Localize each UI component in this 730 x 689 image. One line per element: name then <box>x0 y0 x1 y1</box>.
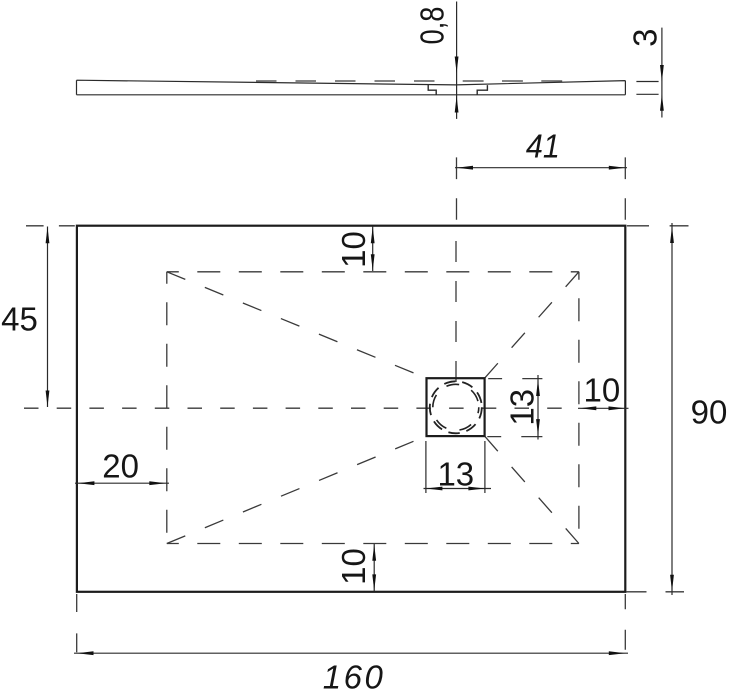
svg-text:13: 13 <box>504 389 541 426</box>
svg-text:10: 10 <box>335 231 372 268</box>
svg-text:10: 10 <box>584 372 621 409</box>
svg-text:3: 3 <box>627 29 664 47</box>
svg-text:90: 90 <box>691 394 728 431</box>
svg-text:45: 45 <box>1 301 38 338</box>
svg-text:13: 13 <box>437 456 474 493</box>
svg-text:160: 160 <box>323 659 384 689</box>
svg-text:41: 41 <box>526 127 560 164</box>
svg-text:10: 10 <box>335 548 372 585</box>
svg-text:0,8: 0,8 <box>414 7 451 45</box>
svg-text:20: 20 <box>102 448 139 485</box>
